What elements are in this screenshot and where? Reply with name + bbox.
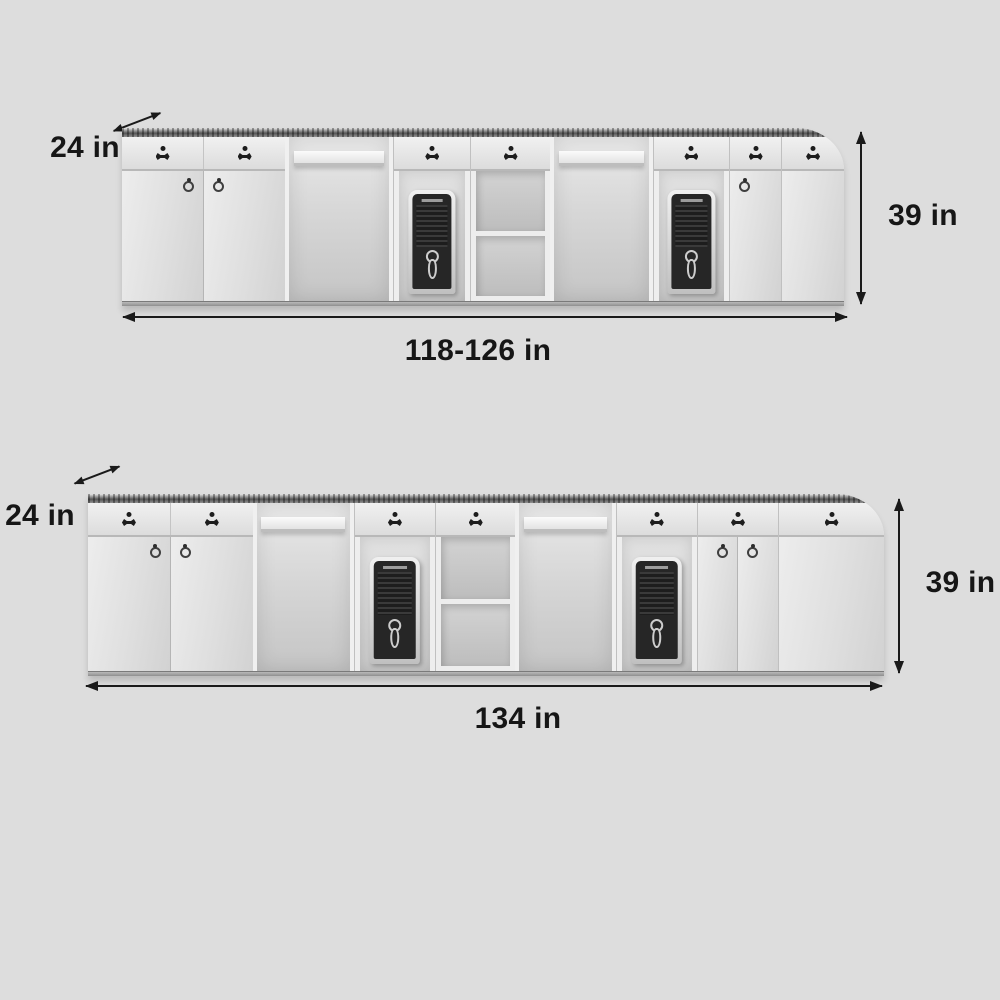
countertop (122, 128, 844, 137)
height-dimension-label: 39 in (868, 201, 978, 231)
open-shelves (436, 537, 515, 671)
tower-bay (616, 503, 697, 671)
drawer-row (436, 503, 515, 537)
drawer-row (698, 503, 778, 537)
cabinet-door (88, 537, 170, 671)
desk-opening (550, 137, 653, 301)
depth-arrow (74, 465, 120, 484)
cabinet-door (779, 537, 884, 671)
cabinet-door (737, 537, 778, 671)
lock-keyhole-icon (469, 512, 483, 526)
height-dimension-label: 39 in (908, 568, 1000, 598)
countertop (88, 494, 884, 503)
drawer-front (617, 503, 697, 535)
cabinet-door (698, 537, 738, 671)
computer-tower (370, 557, 421, 664)
keyboard-tray (559, 151, 644, 166)
tower-brand-label (681, 199, 703, 202)
drawer-front (394, 137, 470, 169)
cabinet-doors (782, 171, 844, 301)
cabinet-door (782, 171, 844, 301)
drawer-front (203, 137, 285, 169)
width-dimension-label: 134 in (418, 704, 618, 734)
drawer-front (170, 503, 253, 535)
width-arrow (86, 685, 882, 687)
lock-keyhole-icon (731, 512, 745, 526)
drawer-row (471, 137, 550, 171)
drawer-front (654, 137, 730, 169)
cabinet-doors (122, 171, 285, 301)
drawer-row (394, 137, 470, 171)
cabinet-doors (730, 171, 781, 301)
lock-keyhole-icon (825, 512, 839, 526)
drawer-front (698, 503, 778, 535)
tower-front-panel (636, 561, 679, 659)
cabinet-body (88, 503, 884, 671)
ring-pull-icon (739, 181, 750, 192)
tower-cubby (355, 537, 435, 671)
shelf-compartment (441, 537, 510, 599)
computer-tower (632, 557, 683, 664)
drawer-front (88, 503, 170, 535)
keyhole-handle-icon (387, 619, 403, 649)
drawer-row (355, 503, 435, 537)
tower-bay (354, 503, 435, 671)
shelf-compartment (476, 236, 545, 296)
lock-keyhole-icon (388, 512, 402, 526)
plinth (88, 671, 884, 676)
height-arrow (898, 499, 900, 673)
cabinet-door (730, 171, 781, 301)
computer-tower (668, 190, 715, 294)
drawer-front (782, 137, 844, 169)
width-arrow (123, 316, 847, 318)
drawer-row (122, 137, 285, 171)
shelf-compartment (441, 604, 510, 666)
cabinet-door (170, 537, 253, 671)
drawer-front (471, 137, 550, 169)
tower-cubby (654, 171, 730, 301)
tower-front-panel (374, 561, 417, 659)
desk-opening (253, 503, 354, 671)
lock-keyhole-icon (425, 146, 439, 160)
tower-cubby (394, 171, 470, 301)
lock-keyhole-icon (122, 512, 136, 526)
lock-keyhole-icon (156, 146, 170, 160)
drawer-row (654, 137, 730, 171)
ring-pull-icon (180, 547, 191, 558)
reception-desk-unit (122, 128, 844, 306)
ring-pull-icon (717, 547, 728, 558)
drawer-front (122, 137, 203, 169)
reception-desk-unit (88, 494, 884, 676)
drawer-front (436, 503, 515, 535)
drawer-front (355, 503, 435, 535)
height-arrow (860, 132, 862, 304)
lock-keyhole-icon (650, 512, 664, 526)
shelf-compartment (476, 171, 545, 231)
lock-keyhole-icon (238, 146, 252, 160)
drawer-row (779, 503, 884, 537)
right-cabinet (697, 503, 778, 671)
tower-cubby (617, 537, 697, 671)
cabinet-doors (779, 537, 884, 671)
depth-dimension-label: 24 in (0, 501, 90, 531)
lock-keyhole-icon (684, 146, 698, 160)
keyhole-handle-icon (683, 250, 699, 280)
keyboard-tray (524, 517, 607, 532)
tower-brand-label (645, 566, 668, 569)
tower-bay (393, 137, 470, 301)
ring-pull-icon (150, 547, 161, 558)
tower-brand-label (383, 566, 406, 569)
keyhole-handle-icon (649, 619, 665, 649)
lock-keyhole-icon (806, 146, 820, 160)
right-end-cabinet (781, 137, 844, 301)
drawer-front (779, 503, 884, 535)
tower-front-panel (672, 194, 711, 289)
desk-opening (515, 503, 615, 671)
tower-brand-label (421, 199, 443, 202)
keyhole-handle-icon (424, 250, 440, 280)
computer-tower (409, 190, 456, 294)
cabinet-body (122, 137, 844, 301)
open-shelves (471, 171, 550, 301)
width-dimension-label: 118-126 in (378, 336, 578, 366)
cabinet-door (203, 171, 285, 301)
tower-bay (653, 137, 730, 301)
drawer-front (730, 137, 781, 169)
right-cabinet (729, 137, 781, 301)
right-end-cabinet (778, 503, 884, 671)
drawer-row (730, 137, 781, 171)
open-shelf-bay (470, 137, 550, 301)
cabinet-door (122, 171, 203, 301)
left-storage-cabinet (122, 137, 285, 301)
drawer-row (88, 503, 253, 537)
lock-keyhole-icon (504, 146, 518, 160)
tower-front-panel (413, 194, 452, 289)
lock-keyhole-icon (205, 512, 219, 526)
keyboard-tray (261, 517, 345, 532)
ring-pull-icon (213, 181, 224, 192)
keyboard-tray (294, 151, 384, 166)
lock-keyhole-icon (749, 146, 763, 160)
desk-opening (285, 137, 393, 301)
ring-pull-icon (747, 547, 758, 558)
drawer-row (617, 503, 697, 537)
cabinet-doors (698, 537, 778, 671)
left-storage-cabinet (88, 503, 253, 671)
drawer-row (782, 137, 844, 171)
open-shelf-bay (435, 503, 515, 671)
plinth (122, 301, 844, 306)
ring-pull-icon (183, 181, 194, 192)
cabinet-doors (88, 537, 253, 671)
